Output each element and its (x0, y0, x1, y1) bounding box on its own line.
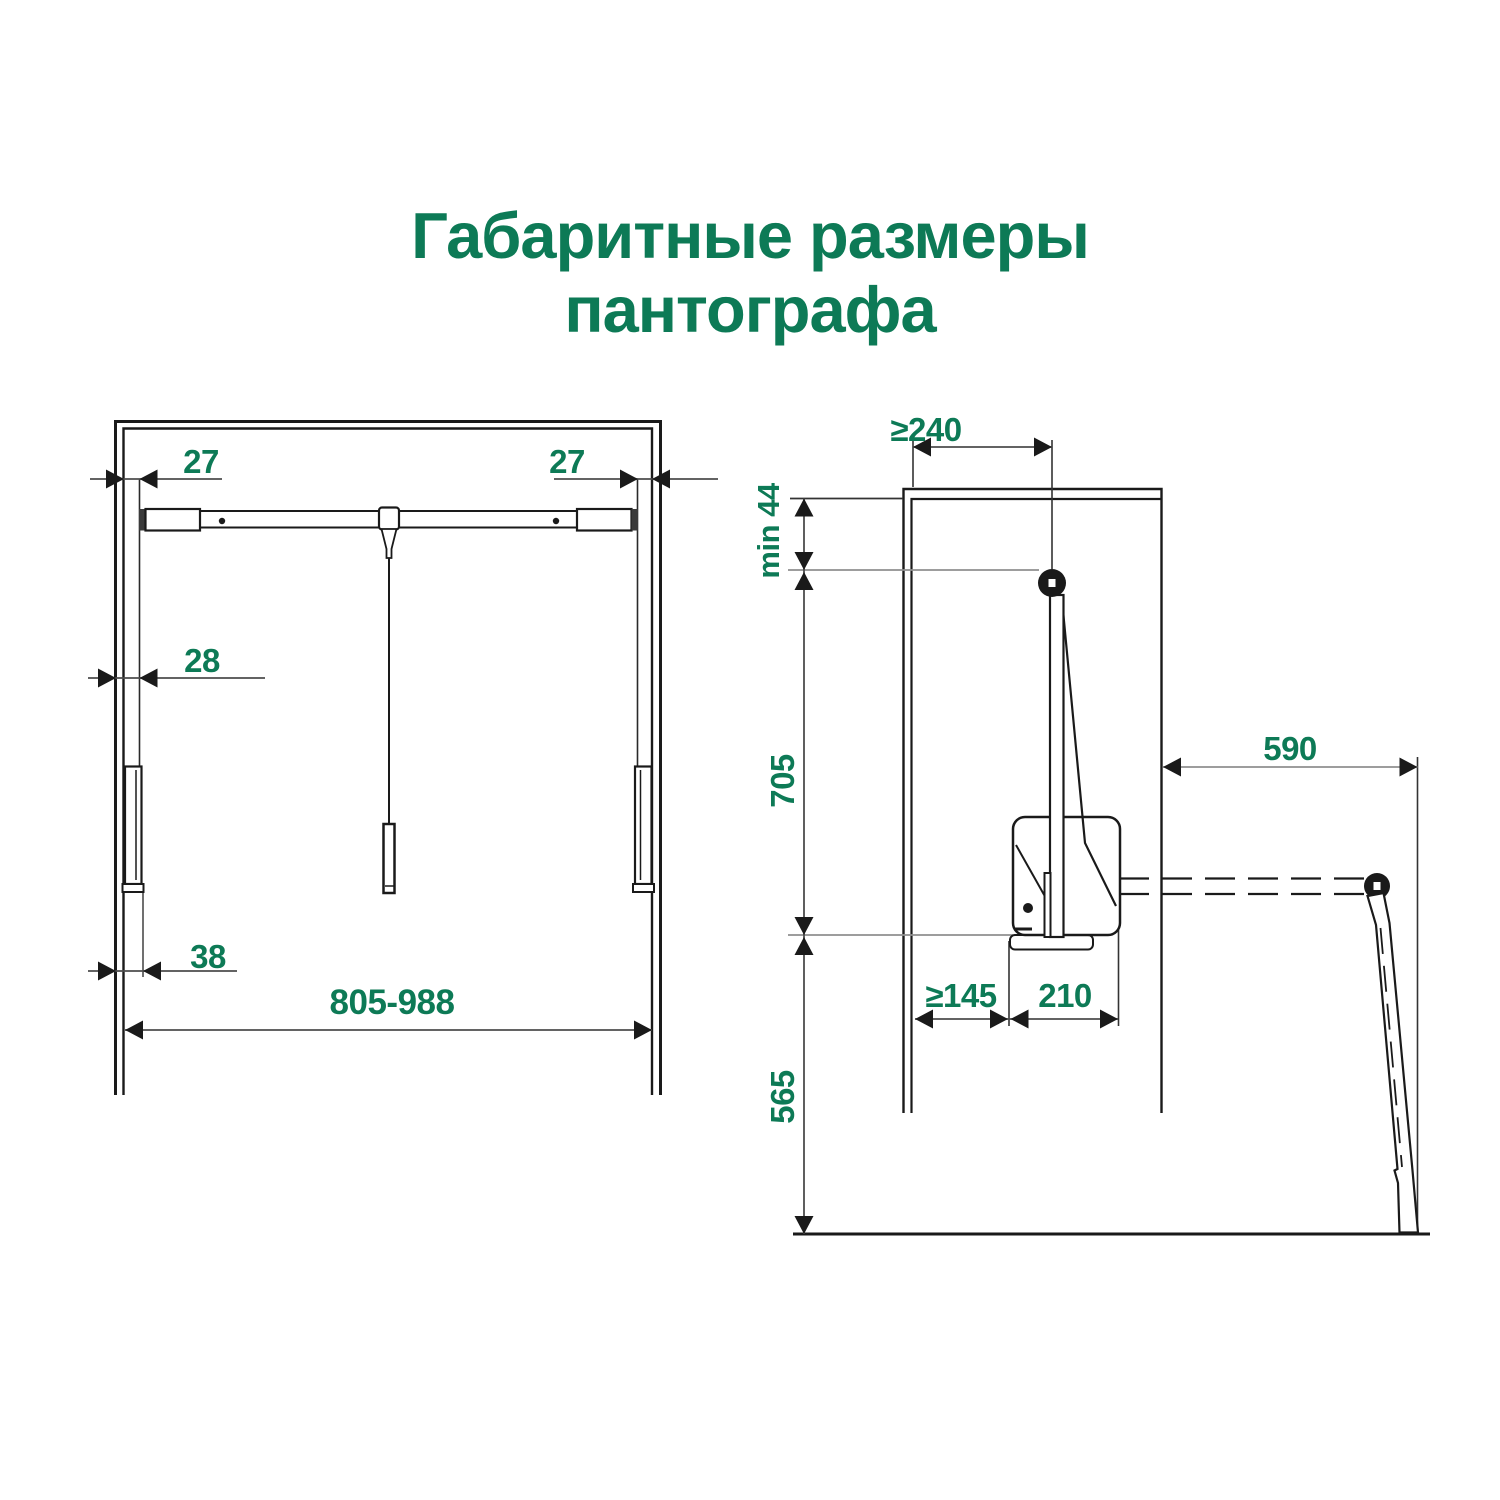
rail-end-hatch-right (632, 509, 639, 531)
wall-bracket-right (633, 767, 654, 893)
dim-label-min-top-depth: ≥240 (890, 411, 961, 448)
front-view-dimension-arrowheads (98, 470, 670, 1040)
cord-exit-wedge (382, 529, 397, 558)
rail-center-slider (379, 508, 399, 530)
rail-mount-block-left (146, 509, 201, 531)
bracket-plate (125, 767, 142, 885)
rail-pin-left (219, 518, 225, 524)
front-view-drawing: 27 27 28 38 805-988 (88, 422, 718, 1096)
rail-mount-block-right (577, 509, 632, 531)
wall-bracket-left (123, 767, 144, 893)
dim-label-side-gap-left: 27 (183, 443, 219, 480)
dim-label-upper-height: 705 (764, 754, 801, 808)
mechanism-body (1013, 817, 1120, 935)
dim-label-bracket-offset: 28 (184, 642, 220, 679)
pantograph-dimensions-diagram: Габаритные размеры пантографа (0, 0, 1500, 1500)
page: { "title": { "line1": "Габаритные размер… (0, 0, 1500, 1500)
body-screw (1023, 903, 1033, 913)
dim-label-lower-height: 565 (764, 1070, 801, 1124)
upper-pivot-slot (1049, 579, 1056, 587)
title-line-2: пантографа (564, 273, 937, 346)
diagram-title: Габаритные размеры пантографа (411, 199, 1089, 346)
dim-label-mount-depth: 38 (190, 938, 226, 975)
rail-pin-right (553, 518, 559, 524)
dim-label-extension-reach: 590 (1263, 730, 1317, 767)
bracket-foot (633, 884, 654, 892)
dim-label-side-gap-right: 27 (549, 443, 585, 480)
side-view-drawing: ≥240 min 44 705 590 ≥145 210 565 (751, 411, 1430, 1234)
dim-label-back-clearance: ≥145 (925, 977, 996, 1014)
dim-label-width-range: 805-988 (330, 983, 455, 1022)
lift-arm-bar (1050, 595, 1064, 937)
front-view-dimension-lines (88, 479, 718, 1030)
dim-label-body-length: 210 (1038, 977, 1092, 1014)
bracket-plate (635, 767, 652, 885)
cabinet-side-inner (912, 499, 1162, 1113)
arm-latch-step (1045, 873, 1051, 937)
telescopic-rod (1119, 879, 1366, 895)
title-line-1: Габаритные размеры (411, 199, 1089, 272)
dim-label-top-clearance: min 44 (751, 482, 786, 578)
rod-end-slot (1374, 882, 1381, 890)
pull-handle (384, 824, 395, 893)
bracket-foot (123, 884, 144, 892)
pantograph-mechanism (1010, 569, 1418, 1233)
